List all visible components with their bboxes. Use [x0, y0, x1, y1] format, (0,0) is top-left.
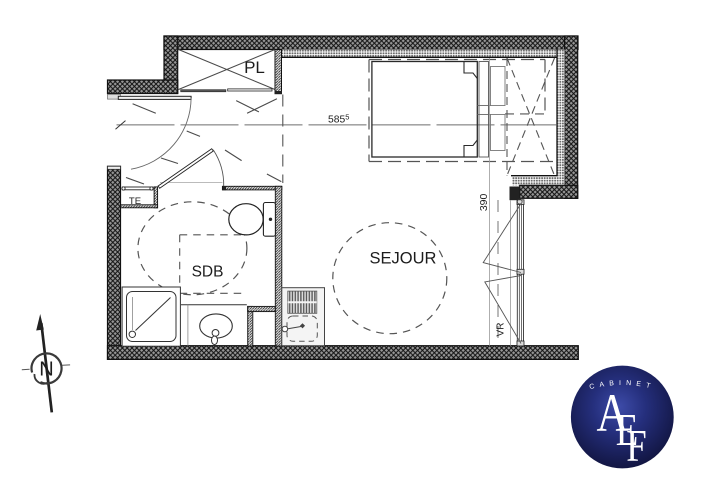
- svg-text:TE: TE: [129, 196, 141, 207]
- svg-text:PL: PL: [244, 58, 265, 77]
- svg-text:N: N: [39, 359, 53, 381]
- svg-text:SDB: SDB: [192, 264, 224, 281]
- svg-text:390: 390: [478, 193, 490, 211]
- svg-text:SEJOUR: SEJOUR: [370, 249, 437, 267]
- svg-text:VR: VR: [496, 323, 507, 337]
- svg-text:5855: 5855: [328, 113, 349, 126]
- svg-text:F: F: [626, 421, 646, 472]
